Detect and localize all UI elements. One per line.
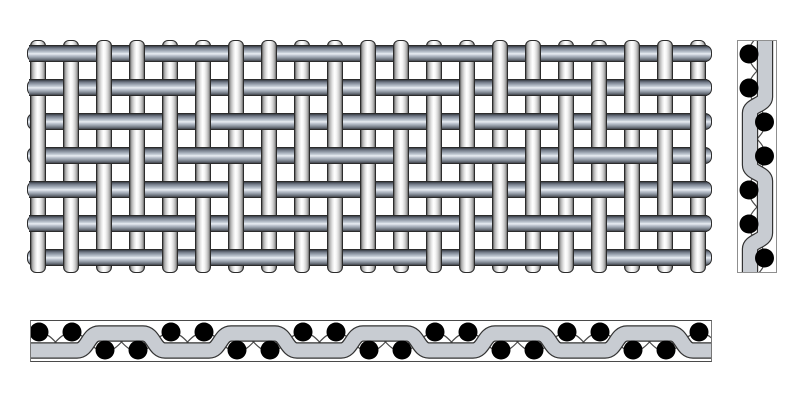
weave-over-patch [62,147,80,164]
warp-dot [492,341,511,360]
figure-canvas [0,0,800,400]
weave-over-patch [227,113,245,130]
weave-over-patch [656,79,674,96]
warp-wire [30,40,46,273]
warp-dot [261,341,280,360]
weft-dot [755,113,774,132]
weave-over-patch [194,181,212,198]
weave-over-patch [590,181,608,198]
weave-over-patch [656,249,674,266]
weave-over-patch [524,79,542,96]
mesh-face-view [27,40,712,273]
warp-dot [657,341,676,360]
weave-over-patch [194,147,212,164]
warp-dot [426,323,445,342]
weave-over-patch [557,215,575,232]
weft-cross-section [30,320,712,362]
weave-over-patch [524,215,542,232]
warp-wire [294,40,310,273]
weave-over-patch [425,215,443,232]
weave-over-patch [458,147,476,164]
weft-section-svg [31,321,711,361]
weave-over-patch [656,215,674,232]
weave-over-patch [326,45,344,62]
weave-over-patch [392,113,410,130]
weave-over-patch [260,79,278,96]
weave-over-patch [392,215,410,232]
weave-over-patch [194,45,212,62]
weave-over-patch [524,113,542,130]
weave-over-patch [260,113,278,130]
weave-over-patch [95,147,113,164]
warp-dot [294,323,313,342]
weave-over-patch [392,79,410,96]
warp-dot [690,323,709,342]
weave-over-patch [557,181,575,198]
weave-over-patch [128,249,146,266]
warp-wire [558,40,574,273]
weave-over-patch [227,249,245,266]
weave-over-patch [161,181,179,198]
warp-wire [426,40,442,273]
warp-wire [261,40,277,273]
weave-over-patch [458,45,476,62]
warp-cross-section [737,40,777,273]
weave-over-patch [359,147,377,164]
weave-over-patch [260,249,278,266]
weft-dot [740,215,759,234]
weave-over-patch [161,45,179,62]
weave-over-patch [62,45,80,62]
warp-dot [558,323,577,342]
weave-over-patch [458,181,476,198]
warp-wire [393,40,409,273]
weave-over-patch [689,181,707,198]
warp-wire [162,40,178,273]
weave-over-patch [623,249,641,266]
warp-wire [129,40,145,273]
weave-over-patch [689,45,707,62]
weave-over-patch [128,215,146,232]
warp-wire [525,40,541,273]
weave-over-patch [161,215,179,232]
warp-dot [327,323,346,342]
weave-over-patch [491,147,509,164]
warp-dot [96,341,115,360]
weave-over-patch [29,45,47,62]
weave-over-patch [161,79,179,96]
weave-over-patch [590,147,608,164]
weave-over-patch [557,45,575,62]
weave-over-patch [425,45,443,62]
weave-over-patch [29,215,47,232]
weave-over-patch [95,249,113,266]
weave-over-patch [128,113,146,130]
warp-dot [459,323,478,342]
weft-dot [740,181,759,200]
warp-dot [228,341,247,360]
weave-over-patch [689,79,707,96]
warp-dot [63,323,82,342]
warp-dot [525,341,544,360]
weave-over-patch [62,181,80,198]
weave-over-patch [392,249,410,266]
weave-over-patch [293,79,311,96]
weave-over-patch [524,249,542,266]
weave-over-patch [656,113,674,130]
weave-over-patch [359,113,377,130]
weave-over-patch [557,79,575,96]
weave-over-patch [491,113,509,130]
weave-over-patch [623,147,641,164]
weft-dot [755,147,774,166]
weave-over-patch [128,79,146,96]
warp-dot [162,323,181,342]
warp-dot [195,323,214,342]
weave-over-patch [293,181,311,198]
warp-dot [31,323,49,342]
weave-over-patch [326,181,344,198]
weft-dot [755,249,774,268]
warp-dot [393,341,412,360]
weave-over-patch [293,215,311,232]
weft-dot [740,79,759,98]
warp-dot [129,341,148,360]
weave-over-patch [590,45,608,62]
weave-over-patch [227,147,245,164]
weave-over-patch [326,147,344,164]
weave-over-patch [425,181,443,198]
warp-dot [360,341,379,360]
warp-wire [657,40,673,273]
weave-over-patch [359,249,377,266]
warp-dot [624,341,643,360]
warp-dot [591,323,610,342]
weave-over-patch [293,45,311,62]
weave-over-patch [623,113,641,130]
weave-over-patch [29,79,47,96]
weave-over-patch [29,181,47,198]
warp-wire [690,40,706,273]
weave-over-patch [95,113,113,130]
weft-dot [740,45,759,64]
weave-over-patch [260,215,278,232]
weave-over-patch [491,249,509,266]
weave-over-patch [425,79,443,96]
weave-over-patch [689,215,707,232]
warp-section-svg [738,41,776,272]
